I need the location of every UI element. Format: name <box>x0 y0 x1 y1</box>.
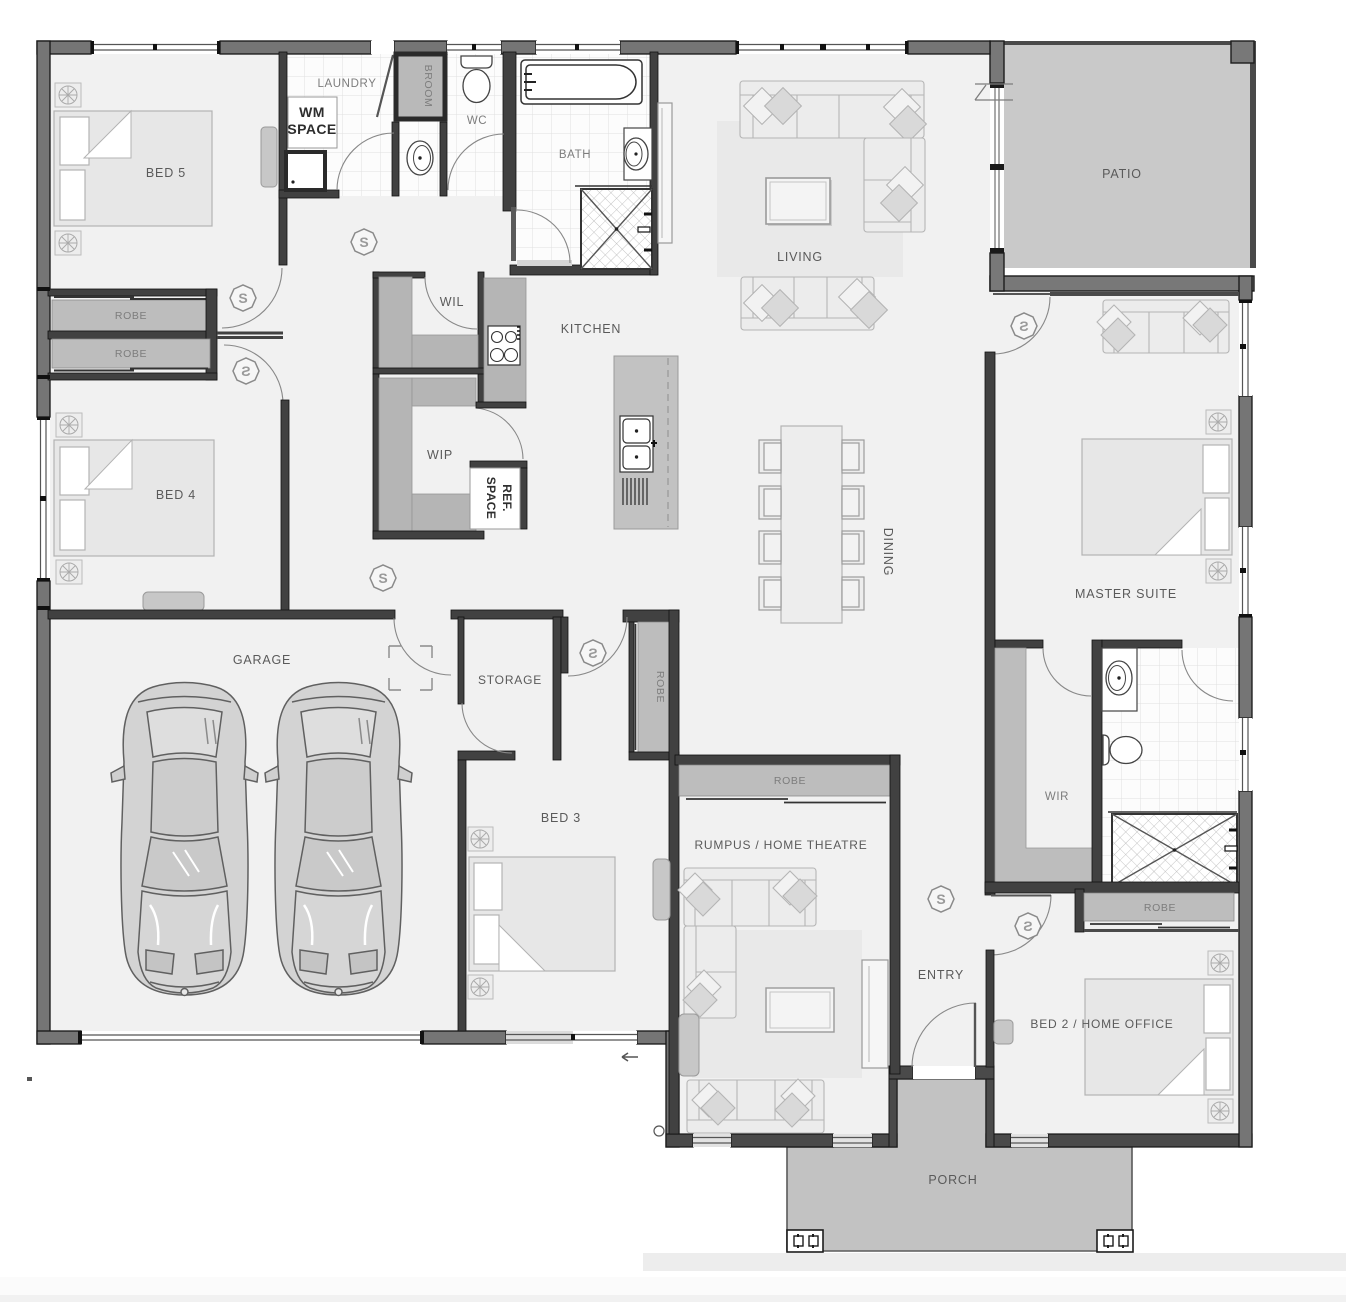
svg-text:KITCHEN: KITCHEN <box>561 322 621 336</box>
svg-text:ROBE: ROBE <box>774 775 806 787</box>
svg-text:ENTRY: ENTRY <box>918 968 964 982</box>
svg-text:STORAGE: STORAGE <box>478 673 542 687</box>
svg-text:ROBE: ROBE <box>654 671 666 703</box>
svg-text:REF.: REF. <box>500 484 514 512</box>
svg-text:ROBE: ROBE <box>115 310 147 322</box>
svg-text:WIR: WIR <box>1045 791 1069 803</box>
svg-text:BED 3: BED 3 <box>541 811 581 825</box>
svg-text:WC: WC <box>467 115 487 127</box>
svg-text:BROOM: BROOM <box>422 65 434 108</box>
svg-text:RUMPUS / HOME THEATRE: RUMPUS / HOME THEATRE <box>694 838 867 852</box>
svg-text:BATH: BATH <box>559 149 591 161</box>
svg-text:S: S <box>359 234 368 250</box>
svg-text:S: S <box>1019 318 1028 334</box>
svg-text:GARAGE: GARAGE <box>233 653 291 667</box>
svg-text:BED 2 / HOME OFFICE: BED 2 / HOME OFFICE <box>1030 1017 1173 1031</box>
svg-text:BED 5: BED 5 <box>146 166 186 180</box>
svg-text:PORCH: PORCH <box>928 1173 977 1187</box>
svg-text:SPACE: SPACE <box>484 477 498 519</box>
svg-text:LIVING: LIVING <box>777 250 823 264</box>
svg-text:S: S <box>378 570 387 586</box>
svg-text:SPACE: SPACE <box>287 121 336 137</box>
svg-text:S: S <box>241 363 250 379</box>
svg-text:S: S <box>936 891 945 907</box>
svg-text:ROBE: ROBE <box>115 348 147 360</box>
svg-text:WIP: WIP <box>427 448 453 462</box>
svg-text:WM: WM <box>299 104 325 120</box>
svg-text:BED 4: BED 4 <box>156 488 196 502</box>
svg-text:S: S <box>238 290 247 306</box>
svg-text:MASTER SUITE: MASTER SUITE <box>1075 587 1177 601</box>
svg-text:WIL: WIL <box>440 295 465 309</box>
svg-text:S: S <box>588 645 597 661</box>
svg-text:S: S <box>1023 918 1032 934</box>
svg-text:DINING: DINING <box>881 528 895 577</box>
svg-text:PATIO: PATIO <box>1102 167 1142 181</box>
svg-text:LAUNDRY: LAUNDRY <box>318 78 377 90</box>
svg-text:ROBE: ROBE <box>1144 902 1176 914</box>
